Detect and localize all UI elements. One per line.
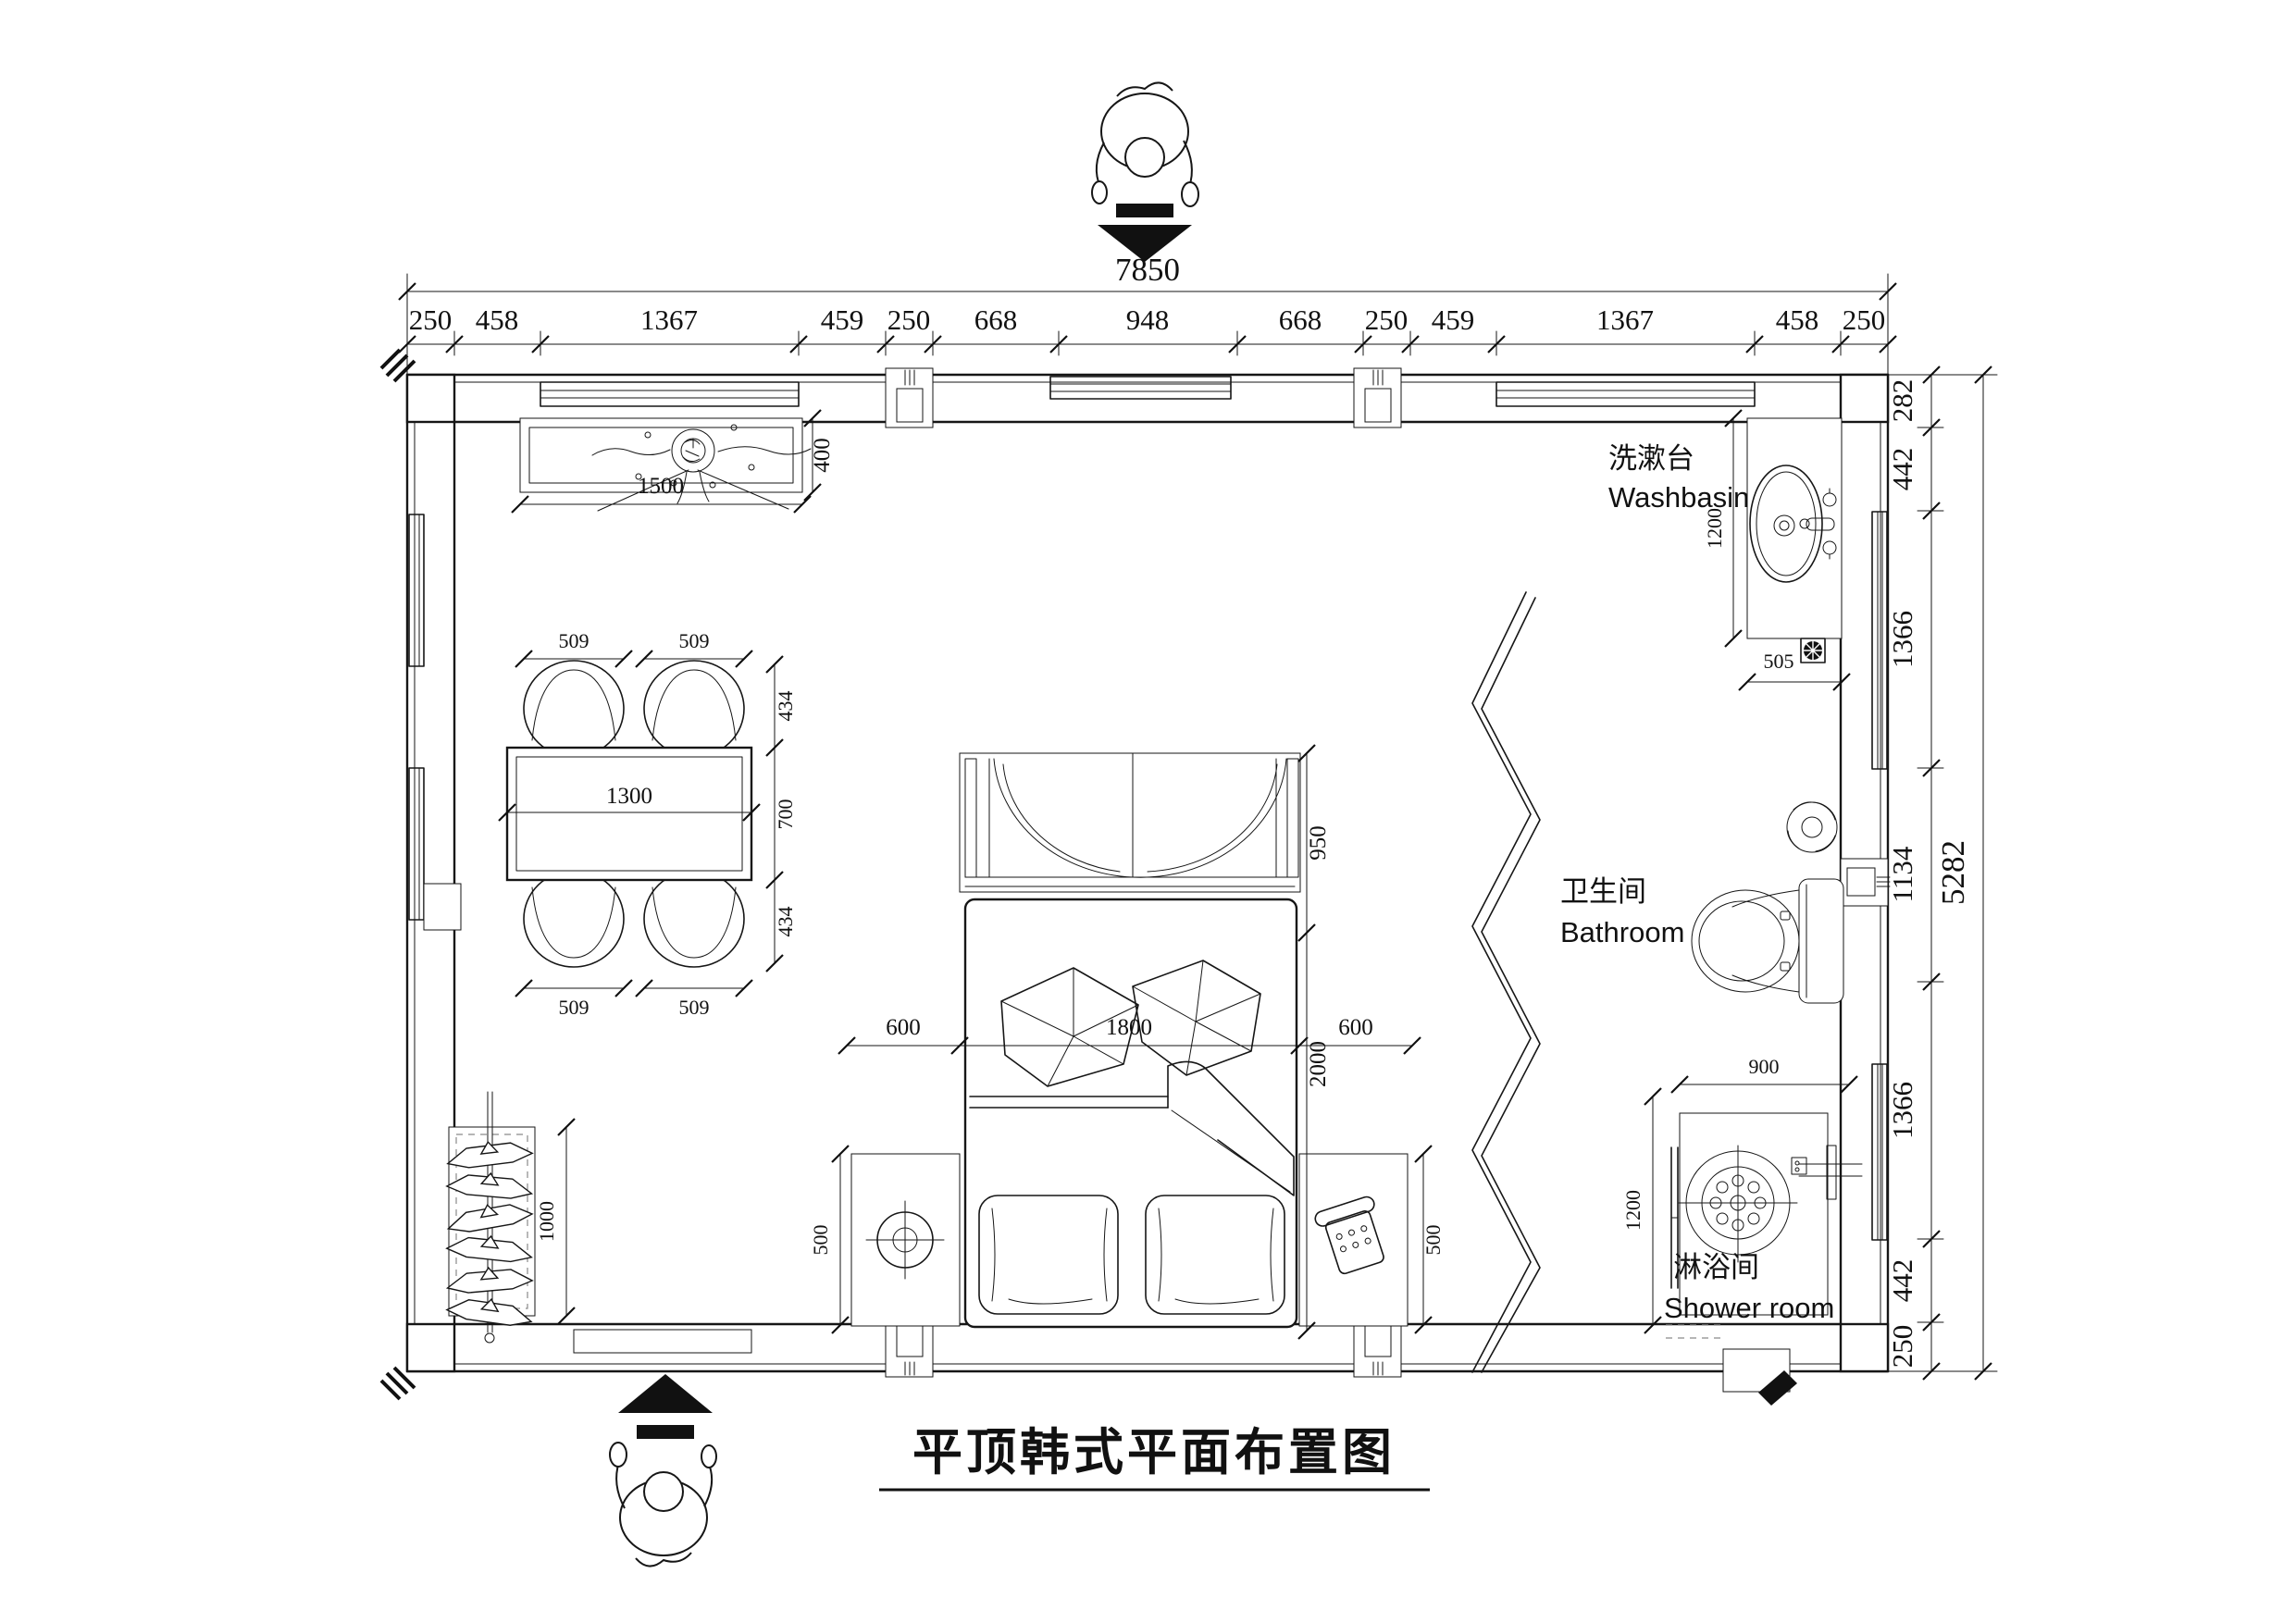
floor-drain-icon [1801,638,1825,663]
dim-bed-width: 1800 [1106,1015,1152,1040]
chair-bottom-left [524,871,624,967]
label-washbasin-zh: 洗漱台 [1608,442,1694,475]
dim-top-seg-5: 668 [974,304,1018,336]
folding-partition [1472,592,1540,1372]
right-wall-column [1841,859,1890,906]
arrow-bar-bottom [637,1425,694,1439]
label-shower-en: Shower room [1664,1292,1834,1324]
top-dimension-chain: 7850 250 458 1367 459 250 668 948 668 25… [399,252,1896,375]
entry-door [574,1330,751,1353]
shower-room: 900 1200 淋浴间 Shower room [1621,1055,1862,1333]
wardrobe [960,753,1300,892]
top-right-window [1496,382,1755,406]
dim-nightstand-right-d: 500 [1421,1225,1445,1256]
dim-right-seg-6: 250 [1886,1325,1918,1369]
person-figure-bottom [610,1443,716,1567]
corner-column-top-right [1841,375,1888,422]
top-left-window [540,382,799,406]
drawing-title: 平顶韩式平面布置图 [912,1425,1396,1481]
dim-top-seg-4: 250 [887,304,931,336]
toilet-icon [1692,879,1843,1003]
dim-table-depth: 700 [774,799,797,830]
dim-console-depth: 400 [810,438,835,473]
right-dimension-chain: 282 442 1366 1134 1366 442 250 5282 [1886,366,1997,1380]
bottom-column-1 [886,1318,933,1377]
dim-top-seg-3: 459 [821,304,864,336]
dim-top-seg-11: 458 [1776,304,1819,336]
arrow-bar-top [1116,204,1173,217]
dim-nightstand-left-d: 500 [809,1225,832,1256]
top-column-2 [1354,368,1401,427]
left-window-upper [409,514,424,666]
dim-top-seg-8: 250 [1365,304,1409,336]
dim-top-seg-0: 250 [409,304,453,336]
dim-chair-depth-bottom: 434 [774,907,797,937]
corner-column-bottom-left [407,1324,454,1371]
top-middle-window [1050,377,1231,399]
bed [965,899,1297,1327]
drawing-title-block: 平顶韩式平面布置图 [879,1425,1430,1490]
left-wall-column [424,884,461,930]
nightstand-left [851,1154,960,1326]
label-bathroom-en: Bathroom [1560,916,1684,948]
fan-icon [1787,802,1837,852]
person-figure-top [1092,82,1198,206]
dim-shower-width: 900 [1749,1055,1780,1078]
chair-bottom-right [644,871,744,967]
dim-console-width: 1500 [638,474,684,499]
dim-top-seg-12: 250 [1843,304,1886,336]
washbasin-area: 1200 505 洗漱台 Washbasin [1608,410,1850,690]
dim-top-seg-6: 948 [1126,304,1170,336]
floor-plan-drawing: 1500 400 1300 509 509 509 [0,0,2296,1623]
bottom-column-2 [1354,1318,1401,1377]
dim-top-seg-1: 458 [476,304,519,336]
dim-rack-length: 1000 [535,1201,558,1242]
dim-right-seg-5: 442 [1886,1259,1918,1303]
right-window-lower [1872,1064,1887,1240]
dim-bed-length: 2000 [1306,1041,1331,1087]
right-window-upper [1872,512,1887,769]
dim-table-width: 1300 [606,784,652,809]
dim-chair-bl: 509 [559,996,590,1019]
corner-column-top-left [407,375,454,422]
dim-right-seg-0: 282 [1886,379,1918,423]
left-window-lower [409,768,424,920]
dim-top-seg-9: 459 [1432,304,1475,336]
dim-right-seg-3: 1134 [1886,846,1918,902]
dining-table: 1300 [499,748,760,880]
top-column-1 [886,368,933,427]
dim-right-seg-4: 1366 [1886,1082,1918,1139]
dim-top-seg-2: 1367 [640,304,698,336]
dim-right-seg-1: 442 [1886,448,1918,491]
up-arrow-icon [618,1374,713,1413]
chair-top-right [644,661,744,757]
floor-plan-page: { "title": "平顶韩式平面布置图", "labels": { "was… [0,0,2296,1623]
dim-chair-tr: 509 [679,629,710,652]
dim-chair-tl: 509 [559,629,590,652]
rack-dim: 1000 [535,1119,575,1324]
dim-basin-length: 1200 [1703,508,1726,549]
dim-top-seg-7: 668 [1279,304,1322,336]
dim-shower-depth: 1200 [1621,1190,1644,1231]
nightstand-right [1299,1154,1408,1326]
dim-chair-depth-top: 434 [774,691,797,722]
dim-chair-br: 509 [679,996,710,1019]
dim-nightstand-left-w: 600 [886,1015,921,1040]
label-shower-zh: 淋浴间 [1673,1251,1759,1283]
entry-marker-bottom [610,1374,716,1567]
console-cabinet: 1500 400 [512,410,835,513]
corner-column-bottom-right [1841,1324,1888,1371]
dim-bed-head: 950 [1306,825,1331,861]
label-bathroom-zh: 卫生间 [1560,875,1646,908]
north-entry-marker-top [1092,82,1198,262]
dim-right-total: 5282 [1935,840,1971,905]
dim-top-seg-10: 1367 [1596,304,1654,336]
dim-right-seg-2: 1366 [1886,611,1918,668]
dim-basin-width: 505 [1764,650,1794,673]
dining-set: 1300 509 509 509 509 434 700 434 [499,629,797,1019]
bathroom-area: 卫生间 Bathroom [1560,802,1843,1003]
chair-top-left [524,661,624,757]
clothes-rack: 1000 [445,1092,575,1343]
shower-entry-block [1666,1325,1797,1406]
label-washbasin-en: Washbasin [1608,481,1749,514]
dim-nightstand-right-w: 600 [1338,1015,1373,1040]
